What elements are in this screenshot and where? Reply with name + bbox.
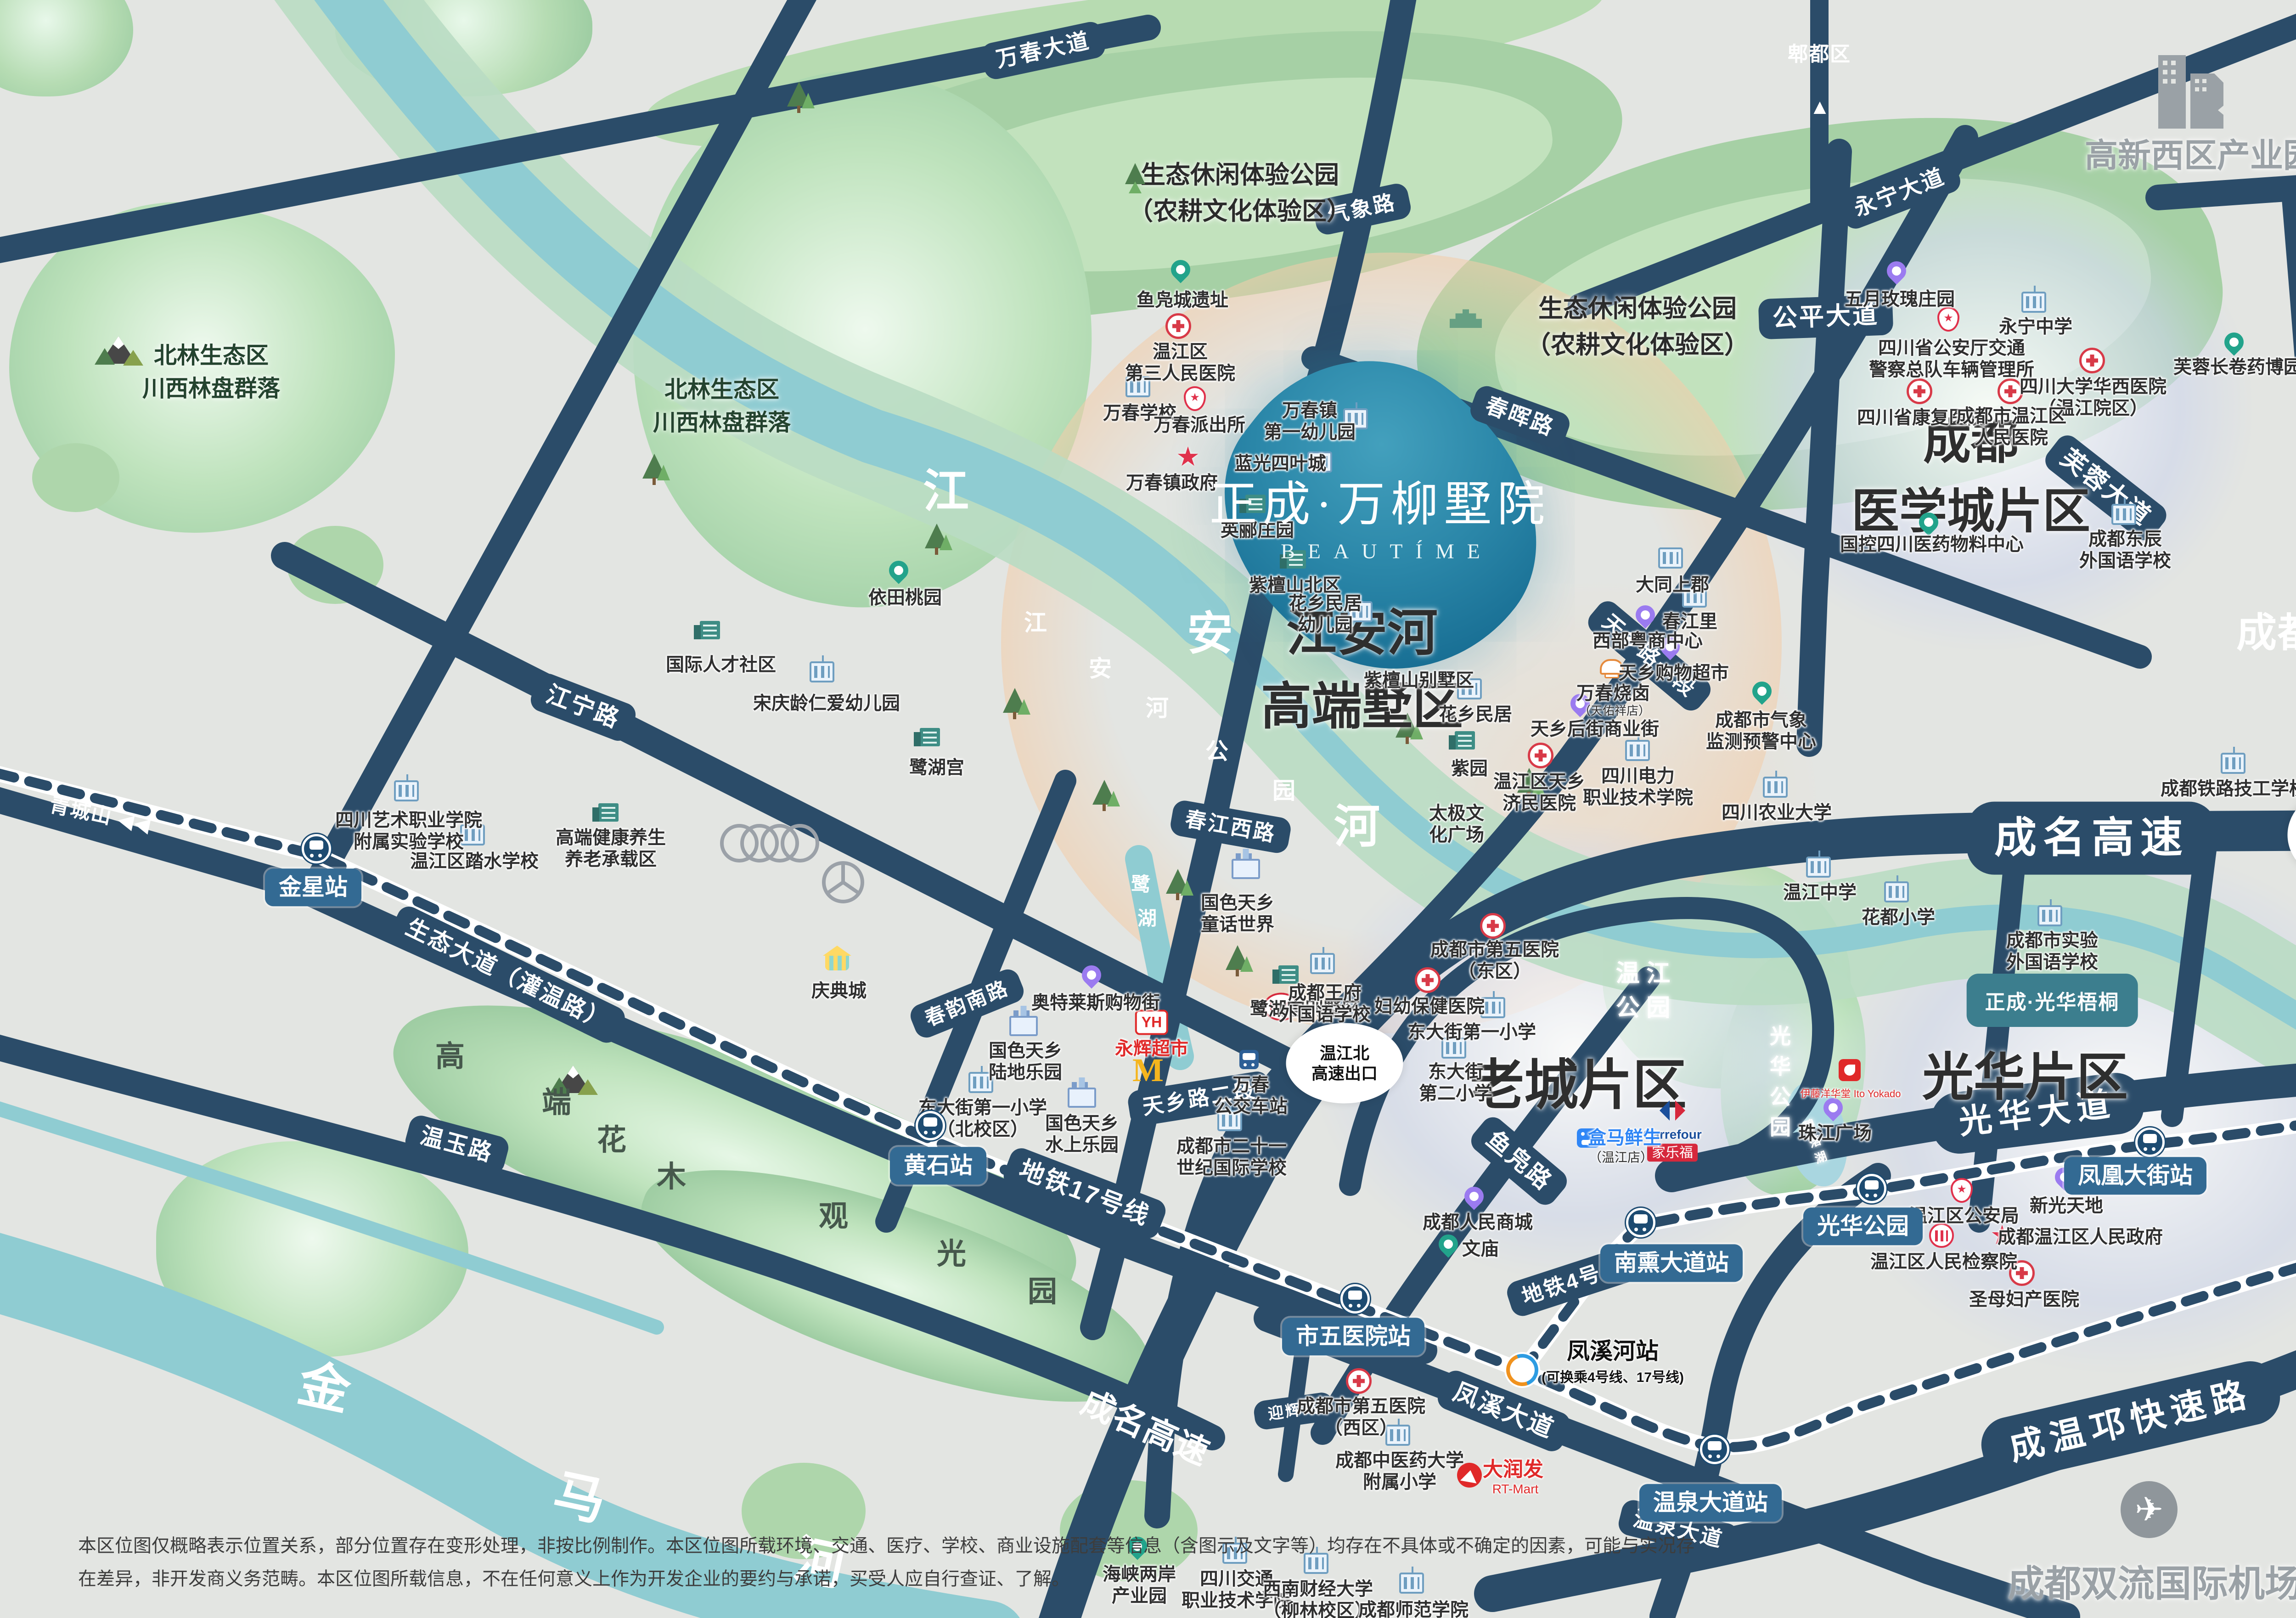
poi-sublabel: 伊藤洋华堂 Ito Yokado	[1801, 1088, 1901, 1100]
school-icon	[2021, 292, 2046, 313]
map-character: 木	[657, 1162, 686, 1191]
zone-eco-park-1: 生态休闲体验公园 （农耕文化体验区）	[1128, 154, 1351, 227]
metro-station-label: 黄石站	[890, 1147, 986, 1184]
poi-label: 成都铁路技工学校	[2161, 778, 2296, 800]
poi-label: 国色天乡 陆地乐园	[989, 1040, 1062, 1083]
mercedes-logo-icon	[824, 863, 862, 902]
school-icon	[810, 661, 834, 682]
poi-label: 高端健康养生 养老承载区	[556, 827, 666, 870]
zone-old-town: 老城片区	[1470, 1041, 1687, 1120]
poi-label: 温江区天乡 济民医院	[1493, 771, 1585, 814]
poi-label: 大润发	[1483, 1458, 1543, 1482]
poi-label: 国色天乡 童话世界	[1201, 892, 1274, 936]
road-label: 成都绕城高速	[2236, 607, 2296, 659]
metro-station-label: 温泉大道站	[1639, 1484, 1782, 1522]
project-brand: BEAUTÍME	[1281, 539, 1493, 564]
zone-eco-park-2: 生态休闲体验公园 （农耕文化体验区）	[1526, 288, 1749, 361]
poi-label: 成都市温江区 人民医院	[1956, 406, 2066, 449]
school-icon	[394, 780, 419, 801]
poi-label: 大同上郡	[1636, 574, 1709, 596]
map-character: 园	[1272, 779, 1295, 802]
poi-label: 盒马鲜生	[1588, 1127, 1661, 1149]
poi-label: 四川省公安厅交通 警察总队车辆管理所	[1869, 338, 2034, 381]
map-character: 高	[435, 1042, 465, 1071]
school-icon	[2221, 753, 2245, 774]
zone-airport: 成都双流国际机场	[2008, 1554, 2296, 1607]
bldg-teal-icon	[598, 803, 619, 822]
poi-label: 成都市气象 监测预警中心	[1706, 710, 1816, 753]
poi-label: 花乡民居	[1439, 704, 1512, 725]
hospital-icon	[1346, 1368, 1372, 1394]
map-disclaimer: 本区位图仅概略表示位置关系，部分位置存在变形处理，非按比例制作。本区位图所载环境…	[78, 1529, 1694, 1595]
poi-label: 成都人民商城	[1423, 1212, 1533, 1233]
poi-label: 国色天乡 水上乐园	[1045, 1113, 1119, 1156]
poi-label: 鹭湖宫	[909, 757, 964, 778]
poi-label: 成都温江区人民政府	[1998, 1226, 2163, 1248]
map-character: 江	[1024, 611, 1047, 634]
poi-label: 紫园	[1451, 758, 1488, 779]
ito-icon	[1839, 1059, 1861, 1081]
bldg-teal-icon	[1455, 731, 1475, 750]
poi-label: 珠江广场	[1798, 1122, 1872, 1144]
bus-icon	[1239, 1050, 1259, 1069]
location-map: 正成·万柳墅院 BEAUTÍME 本区位图仅概略表示位置关系，部分位置存在变形处…	[0, 0, 2296, 1618]
map-character: 湖	[1137, 909, 1157, 928]
station-sublabel: (可换乘4号线、17号线)	[1542, 1366, 1684, 1386]
poi-label: 成都师范学院	[1358, 1599, 1469, 1618]
map-character: 花	[597, 1125, 626, 1155]
map-character: 公	[1205, 740, 1228, 763]
train-station-icon	[1857, 1174, 1886, 1203]
metro-station-label: 光华公园	[1803, 1207, 1923, 1245]
poi-label: 花乡民居 幼儿园	[1289, 593, 1362, 636]
poi-label: 成都市第五医院 （西区）	[1297, 1396, 1425, 1439]
map-character: 端	[542, 1088, 571, 1117]
poi-label: 成都市实验 外国语学校	[2006, 930, 2098, 973]
metro-station-label: 南熏大道站	[1600, 1244, 1743, 1282]
plane-icon: ✈	[2121, 1481, 2178, 1538]
train-station-icon	[302, 834, 331, 863]
poi-label: 万春派出所	[1154, 414, 1245, 436]
map-character: 安	[1187, 611, 1233, 657]
poi-sublabel: （温江店）	[1589, 1150, 1653, 1165]
bldg-blue-icon	[1658, 547, 1683, 569]
estate-label: 正成·光华梧桐	[1967, 974, 2138, 1027]
bldg-teal-icon	[920, 728, 940, 746]
poi-label: 成都市二十一 世纪国际学校	[1176, 1136, 1287, 1179]
train-station-icon	[1626, 1208, 1655, 1237]
poi-label: 天乡购物超市	[1619, 662, 1729, 684]
poi-label: 国控四川医药物料中心	[1840, 534, 2024, 555]
carrefour-icon	[1660, 1100, 1685, 1121]
zone-beilin-2: 北林生态区 川西林盘群落	[653, 371, 791, 437]
poi-label: 国际人才社区	[666, 654, 776, 676]
map-character: 园	[1028, 1277, 1057, 1306]
poi-label: 万春烧卤	[1576, 682, 1650, 704]
poi-label: 庆典城	[811, 980, 867, 1002]
tent-icon	[825, 955, 849, 970]
poi-label: 太极文 化广场	[1429, 803, 1484, 846]
poi-label: 五月玫瑰庄园	[1845, 288, 1955, 310]
hospital-icon	[1165, 313, 1191, 339]
poi-label: 妇幼保健医院	[1374, 996, 1485, 1017]
poi-label: 成都王府 外国语学校	[1279, 982, 1371, 1026]
poi-label: 花都小学	[1862, 907, 1935, 928]
interchange-label: 温江北 高速出口	[1286, 1023, 1403, 1104]
school-icon	[2111, 504, 2136, 525]
poi-label: 四川电力 职业技术学院	[1583, 766, 1693, 809]
school-icon	[1763, 777, 1788, 798]
poi-label: 永辉超市	[1115, 1038, 1188, 1060]
poi-label: 温江中学	[1783, 882, 1857, 903]
zone-guanghua: 光华片区	[1922, 1036, 2128, 1110]
train-station-icon	[2135, 1128, 2165, 1157]
project-title: 正成·万柳墅院	[1210, 465, 1551, 535]
poi-label: 永宁中学	[1999, 316, 2072, 338]
poi-label: 万春镇 第一幼儿园	[1264, 400, 1356, 443]
poi-label: 四川艺术职业学院 附属实验学校	[335, 810, 482, 853]
metro-station-label: 凤溪河站(可换乘4号线、17号线)	[1542, 1333, 1684, 1386]
poi-label: 芙蓉长卷药博园	[2173, 356, 2296, 378]
map-character: 光	[937, 1239, 966, 1268]
hospital-icon	[2079, 348, 2105, 373]
castle-icon	[1068, 1088, 1096, 1108]
train-station-icon	[1340, 1284, 1370, 1314]
castle-icon	[1009, 1016, 1038, 1036]
poi-label: 成都东辰 外国语学校	[2079, 529, 2171, 572]
school-icon	[1310, 953, 1335, 974]
road-gongping-avenue	[1809, 152, 1839, 744]
poi-label: 圣母妇产医院	[1969, 1289, 2079, 1310]
metro-station-label: 金星站	[265, 868, 361, 906]
poi-label: 四川农业大学	[1722, 802, 1832, 823]
bldg-teal-icon	[1278, 965, 1299, 984]
poi-label: 宋庆龄仁爱幼儿园	[753, 693, 900, 714]
map-character: 江	[923, 468, 969, 514]
metro-station-label: 凤凰大街站	[2064, 1157, 2206, 1195]
hospital-icon	[1480, 913, 1506, 939]
map-character: 马	[549, 1468, 610, 1529]
poi-label: 紫檀山别墅区	[1364, 670, 1474, 691]
hospital-icon	[1907, 378, 1932, 404]
label-guanghua-park: 光 华 公 园	[1770, 1020, 1791, 1141]
poi-label: 春江里	[1662, 611, 1717, 632]
zone-hitech-park: 高新西区产业园	[2085, 129, 2296, 177]
poi-label: 万春镇政府	[1126, 472, 1218, 494]
bldg-teal-icon	[700, 621, 720, 639]
poi-label: 依田桃园	[868, 587, 942, 609]
map-character: 河	[1334, 804, 1380, 850]
poi-label: 温江区踏水学校	[410, 851, 539, 872]
poi-label: 温江区人民检察院	[1870, 1251, 2017, 1273]
poi-label: 西部粤商中心	[1593, 630, 1703, 652]
poi-label: 天乡后街商业街	[1531, 718, 1659, 740]
school-icon	[1806, 857, 1831, 878]
star-icon: ★	[1176, 444, 1200, 470]
road-label: 成名高速	[1967, 802, 2217, 875]
map-character: 鹭	[1131, 875, 1150, 894]
tree-icon	[1125, 163, 1145, 184]
road-label: 郫都区	[1788, 41, 1851, 67]
poi-label: 万春 公交车站	[1214, 1074, 1288, 1117]
map-character: 金	[294, 1358, 355, 1419]
train-station-icon	[1700, 1435, 1729, 1464]
hospital-icon	[1528, 743, 1553, 768]
school-icon	[1625, 740, 1650, 761]
poi-label: 成都中医药大学 附属小学	[1335, 1450, 1464, 1493]
poi-label: 温江区公安局	[1909, 1205, 2019, 1227]
zone-beilin-1: 北林生态区 川西林盘群落	[142, 337, 280, 403]
poi-label: 东大街 第二小学	[1419, 1061, 1492, 1105]
poi-label: 温江区 第三人民医院	[1125, 341, 1235, 384]
castle-icon	[1232, 859, 1260, 879]
label-wenjiang-park: 温 江 公 园	[1616, 954, 1670, 1023]
metro-station-label: 市五医院站	[1282, 1318, 1424, 1355]
poi-label: 东大街第一小学	[1407, 1021, 1536, 1043]
map-character: 观	[819, 1201, 848, 1231]
poi-label: 成都市第五医院 （东区）	[1430, 939, 1559, 982]
poi-sublabel: （天佑祥店）	[1579, 704, 1650, 718]
train-station-icon	[916, 1111, 945, 1140]
poi-label: 鱼凫城遗址	[1137, 289, 1228, 311]
school-icon	[1884, 881, 1909, 902]
map-character: 安	[1089, 657, 1112, 680]
map-character: ▲	[1809, 96, 1830, 117]
poi-label: 奥特莱斯购物街	[1031, 992, 1160, 1014]
poi-label: 文庙	[1462, 1238, 1499, 1260]
map-character: 河	[1146, 697, 1169, 720]
poi-label: 新光天地	[2030, 1195, 2103, 1217]
school-icon	[2037, 905, 2062, 926]
poi-sublabel: RT-Mart	[1492, 1481, 1539, 1496]
